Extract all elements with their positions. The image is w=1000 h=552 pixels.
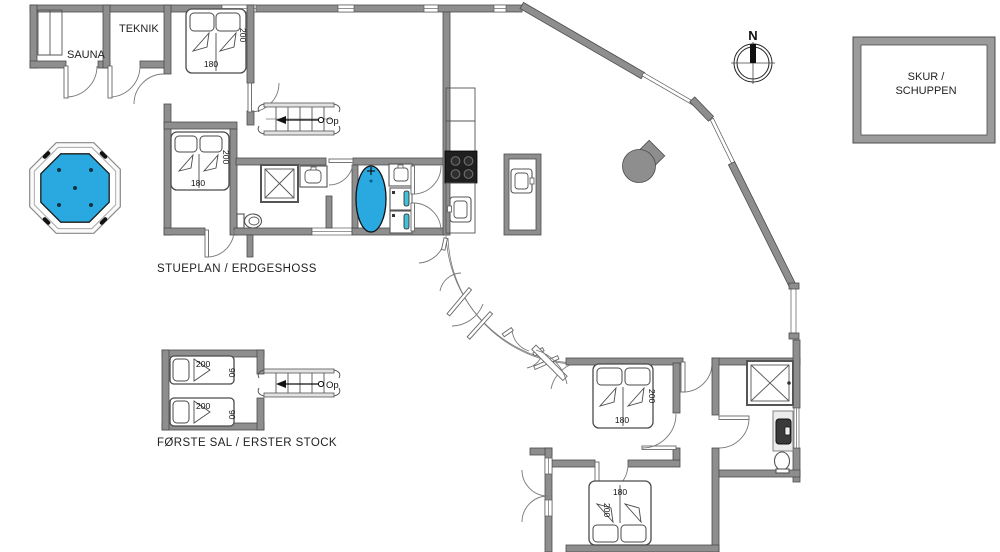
floor-plan-svg: SAUNA TEKNIK 200 180 xyxy=(0,0,1000,552)
bed-width-label: 90 xyxy=(227,410,237,420)
shed-label-line2: SCHUPPEN xyxy=(895,85,956,97)
bed-length-label: 200 xyxy=(647,389,657,403)
stairs-first: Op xyxy=(258,369,340,397)
closet-doors xyxy=(411,166,441,231)
double-bed: 200 180 xyxy=(593,364,657,428)
kitchen xyxy=(445,88,541,235)
stove-icon xyxy=(445,151,477,183)
diagonal-facade xyxy=(520,2,799,339)
toilet-icon xyxy=(775,452,790,473)
double-bed: 180 200 xyxy=(589,481,651,545)
single-bed: 200 90 xyxy=(170,356,237,384)
shower-icon xyxy=(747,361,793,405)
first-floor-plan: 200 90 200 90 Op FØRSTE SAL / ERSTER STO… xyxy=(157,350,340,449)
kitchen-sink-icon xyxy=(448,197,472,222)
toilet-icon xyxy=(237,214,262,228)
window xyxy=(312,228,352,235)
bedroom-block: 200 180 180 200 xyxy=(522,340,800,552)
bed-width-label: 180 xyxy=(204,59,218,69)
room-sauna: SAUNA xyxy=(38,10,106,61)
bed-width-label: 180 xyxy=(613,487,627,497)
bedroom-1: 200 180 xyxy=(186,9,279,112)
hot-tub xyxy=(30,143,121,234)
bed-length-label: 200 xyxy=(238,28,248,42)
double-bed: 200 180 xyxy=(171,132,231,190)
bed-width-label: 90 xyxy=(227,368,237,378)
bed-length-label: 200 xyxy=(196,401,210,411)
single-bed: 200 90 xyxy=(170,398,237,426)
floor-plan-page: SAUNA TEKNIK 200 180 xyxy=(0,0,1000,552)
bedroom-4: 180 200 xyxy=(589,481,651,545)
island-sink-icon xyxy=(511,169,534,193)
north-needle xyxy=(750,44,756,63)
bedroom-2: 200 180 xyxy=(171,132,231,190)
first-floor-title: FØRSTE SAL / ERSTER STOCK xyxy=(157,437,337,449)
bed-width-label: 180 xyxy=(191,178,205,188)
washer-icon xyxy=(390,188,412,210)
compass-rose: N xyxy=(731,28,775,84)
door xyxy=(64,66,164,104)
window xyxy=(794,408,799,448)
sink-icon xyxy=(300,166,327,187)
shed-label-line1: SKUR / xyxy=(908,71,946,83)
double-bed: 200 180 xyxy=(186,9,248,73)
bed-length-label: 200 xyxy=(602,503,612,517)
ground-floor-title: STUEPLAN / ERDGESHOSS xyxy=(157,263,317,275)
stairs-ground: Op xyxy=(258,103,340,135)
stairs-up-label: Op xyxy=(326,116,339,127)
room-teknik: TEKNIK xyxy=(119,23,159,35)
bathroom-2 xyxy=(356,164,412,233)
fireplace xyxy=(623,140,665,182)
sink-icon xyxy=(773,411,793,451)
compass-north-label: N xyxy=(748,28,757,43)
sauna-label: SAUNA xyxy=(67,49,106,61)
stairs-up-label: Op xyxy=(326,380,339,391)
shower-icon xyxy=(261,165,298,202)
sink-icon xyxy=(389,164,412,186)
teknik-label: TEKNIK xyxy=(119,23,159,35)
bedroom-3: 200 180 xyxy=(593,364,657,428)
bed-width-label: 180 xyxy=(615,415,629,425)
bed-length-label: 200 xyxy=(196,359,210,369)
bed-length-label: 200 xyxy=(221,150,231,164)
shed: SKUR / SCHUPPEN xyxy=(853,37,995,143)
bathroom-1 xyxy=(237,159,353,228)
kitchen-island xyxy=(504,154,541,235)
dryer-icon xyxy=(390,211,412,233)
bathtub xyxy=(356,166,386,232)
